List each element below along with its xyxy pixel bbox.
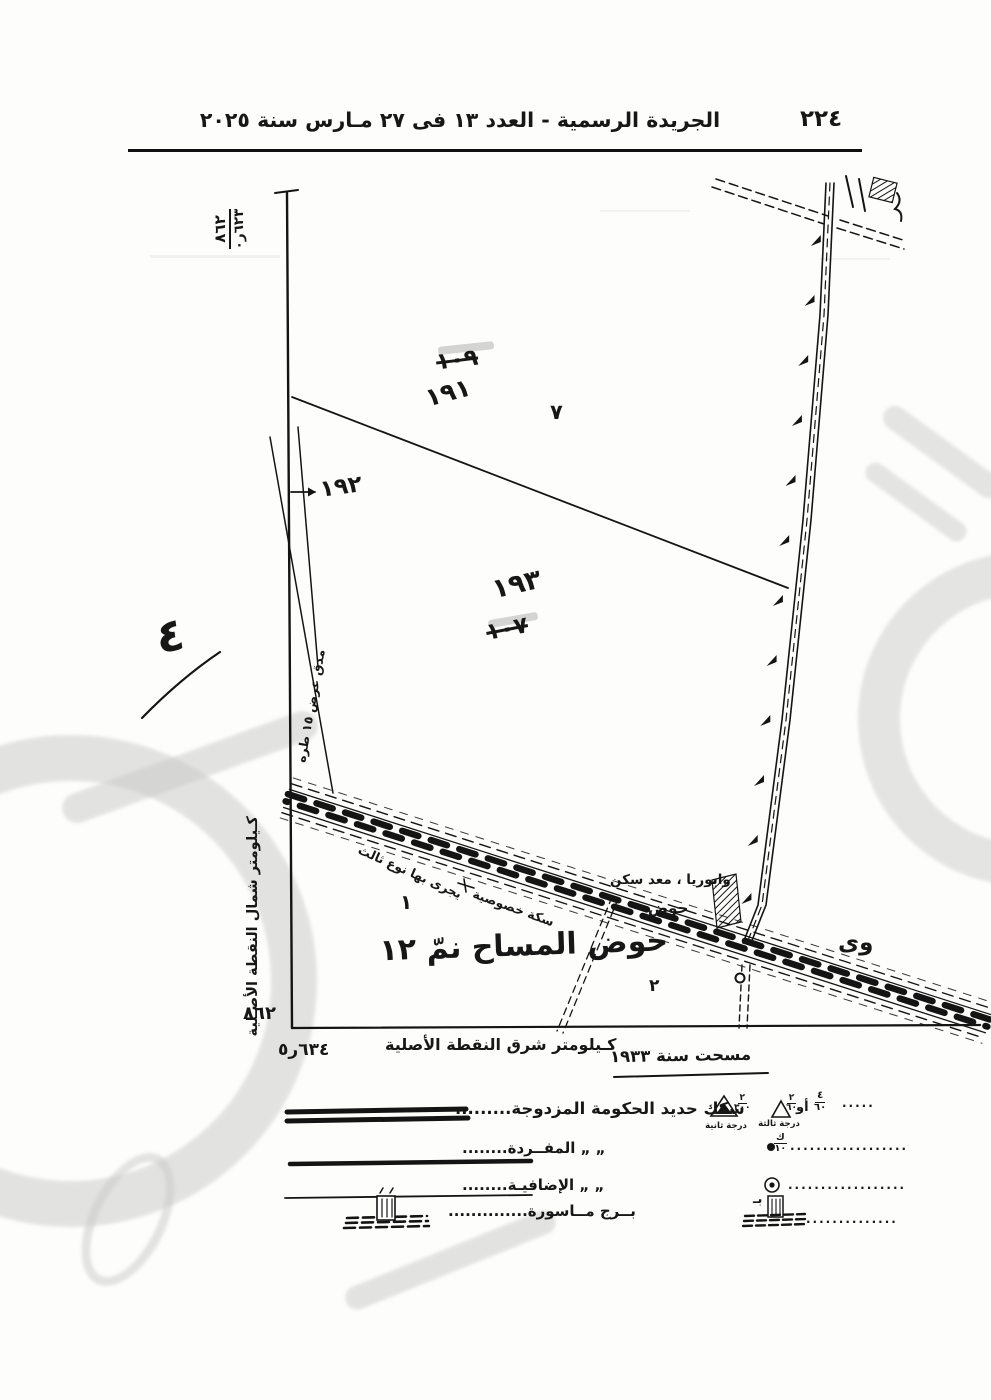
km-north-value: ٨٦٢ [211, 209, 231, 248]
km-north-coordinate: ٨٦٢ ٦٢٣ر٠ [211, 193, 253, 265]
legend-row-double-railway: سكك حديد الحكومة المزدوجة......... [455, 1099, 745, 1118]
third-degree-label: درجة ثالثة [755, 1119, 803, 1129]
benchmark-fraction-b: ٢ ٦٠ [786, 1094, 797, 1114]
legend-label: „ „ المفــردة [508, 1139, 606, 1157]
legend-leader: ........ [462, 1176, 508, 1194]
legend-label: سكك حديد الحكومة المزدوجة [511, 1099, 744, 1118]
benchmark-fraction-c: ٢ ٣٠٠ [734, 1094, 750, 1114]
edge-partial-word: وى [838, 930, 873, 956]
parcel-number-1: ١ [400, 890, 412, 914]
point-fraction: ك ١٠ [774, 1133, 787, 1154]
west-axis-label: كـيلومتر شمال النقطة الأصـلية [245, 816, 267, 1012]
legend-row-pipe-tower: بــرج مــاسورة.............. [448, 1202, 636, 1220]
parcel-number-2: ٢ [649, 976, 659, 996]
legend-leader: .................. [790, 1139, 908, 1153]
basin-small-label: حوض [648, 899, 688, 917]
parcel-number-7: ٧ [550, 400, 563, 424]
header-rule [128, 149, 862, 152]
south-axis-label: كـيلومتر شرق النقطة الأصلية [385, 1035, 616, 1054]
legend-row-single-railway: „ „ المفــردة........ [462, 1139, 606, 1157]
pump-house-label: وابوريا ، معد سكن [610, 872, 731, 888]
survey-map-linework [140, 175, 985, 1335]
legend-leader: ........ [462, 1139, 508, 1157]
legend-leader: ..... [842, 1096, 875, 1110]
legend-label: بــرج مــاسورة [528, 1202, 636, 1220]
gazette-page: ٢٢٤ الجريدة الرسمية - العدد ١٣ فى ٢٧ مـا… [0, 0, 991, 1400]
southeast-value: ٦٣٤ر٥ [278, 1040, 329, 1060]
legend-or: أو [796, 1100, 809, 1115]
legend-leader: .............. [448, 1202, 528, 1220]
legend-row-additional-railway: „ „ الإضافيـة........ [462, 1176, 604, 1194]
legend-leader: .............. [806, 1212, 898, 1226]
legend-leader: ......... [455, 1099, 511, 1118]
legend-label: „ „ الإضافيـة [508, 1176, 605, 1194]
km-north-decimal: ٦٢٣ر٠ [231, 209, 247, 250]
page-title: الجريدة الرسمية - العدد ١٣ فى ٢٧ مـارس س… [145, 108, 775, 132]
second-degree-label: درجة ثانية [700, 1121, 752, 1131]
struck-parcel-number-top: ١٠٩ [435, 345, 480, 376]
southwest-value: ٨٦٢ [243, 1003, 276, 1024]
benchmark-fraction-a: ٤ ٦٠ [814, 1091, 826, 1113]
tower-prefix: بـ [753, 1192, 762, 1207]
survey-year: مسحت سنة ١٩٣٣ [610, 1045, 751, 1066]
legend-leader: .................. [788, 1178, 906, 1192]
page-number: ٢٢٤ [800, 106, 842, 132]
